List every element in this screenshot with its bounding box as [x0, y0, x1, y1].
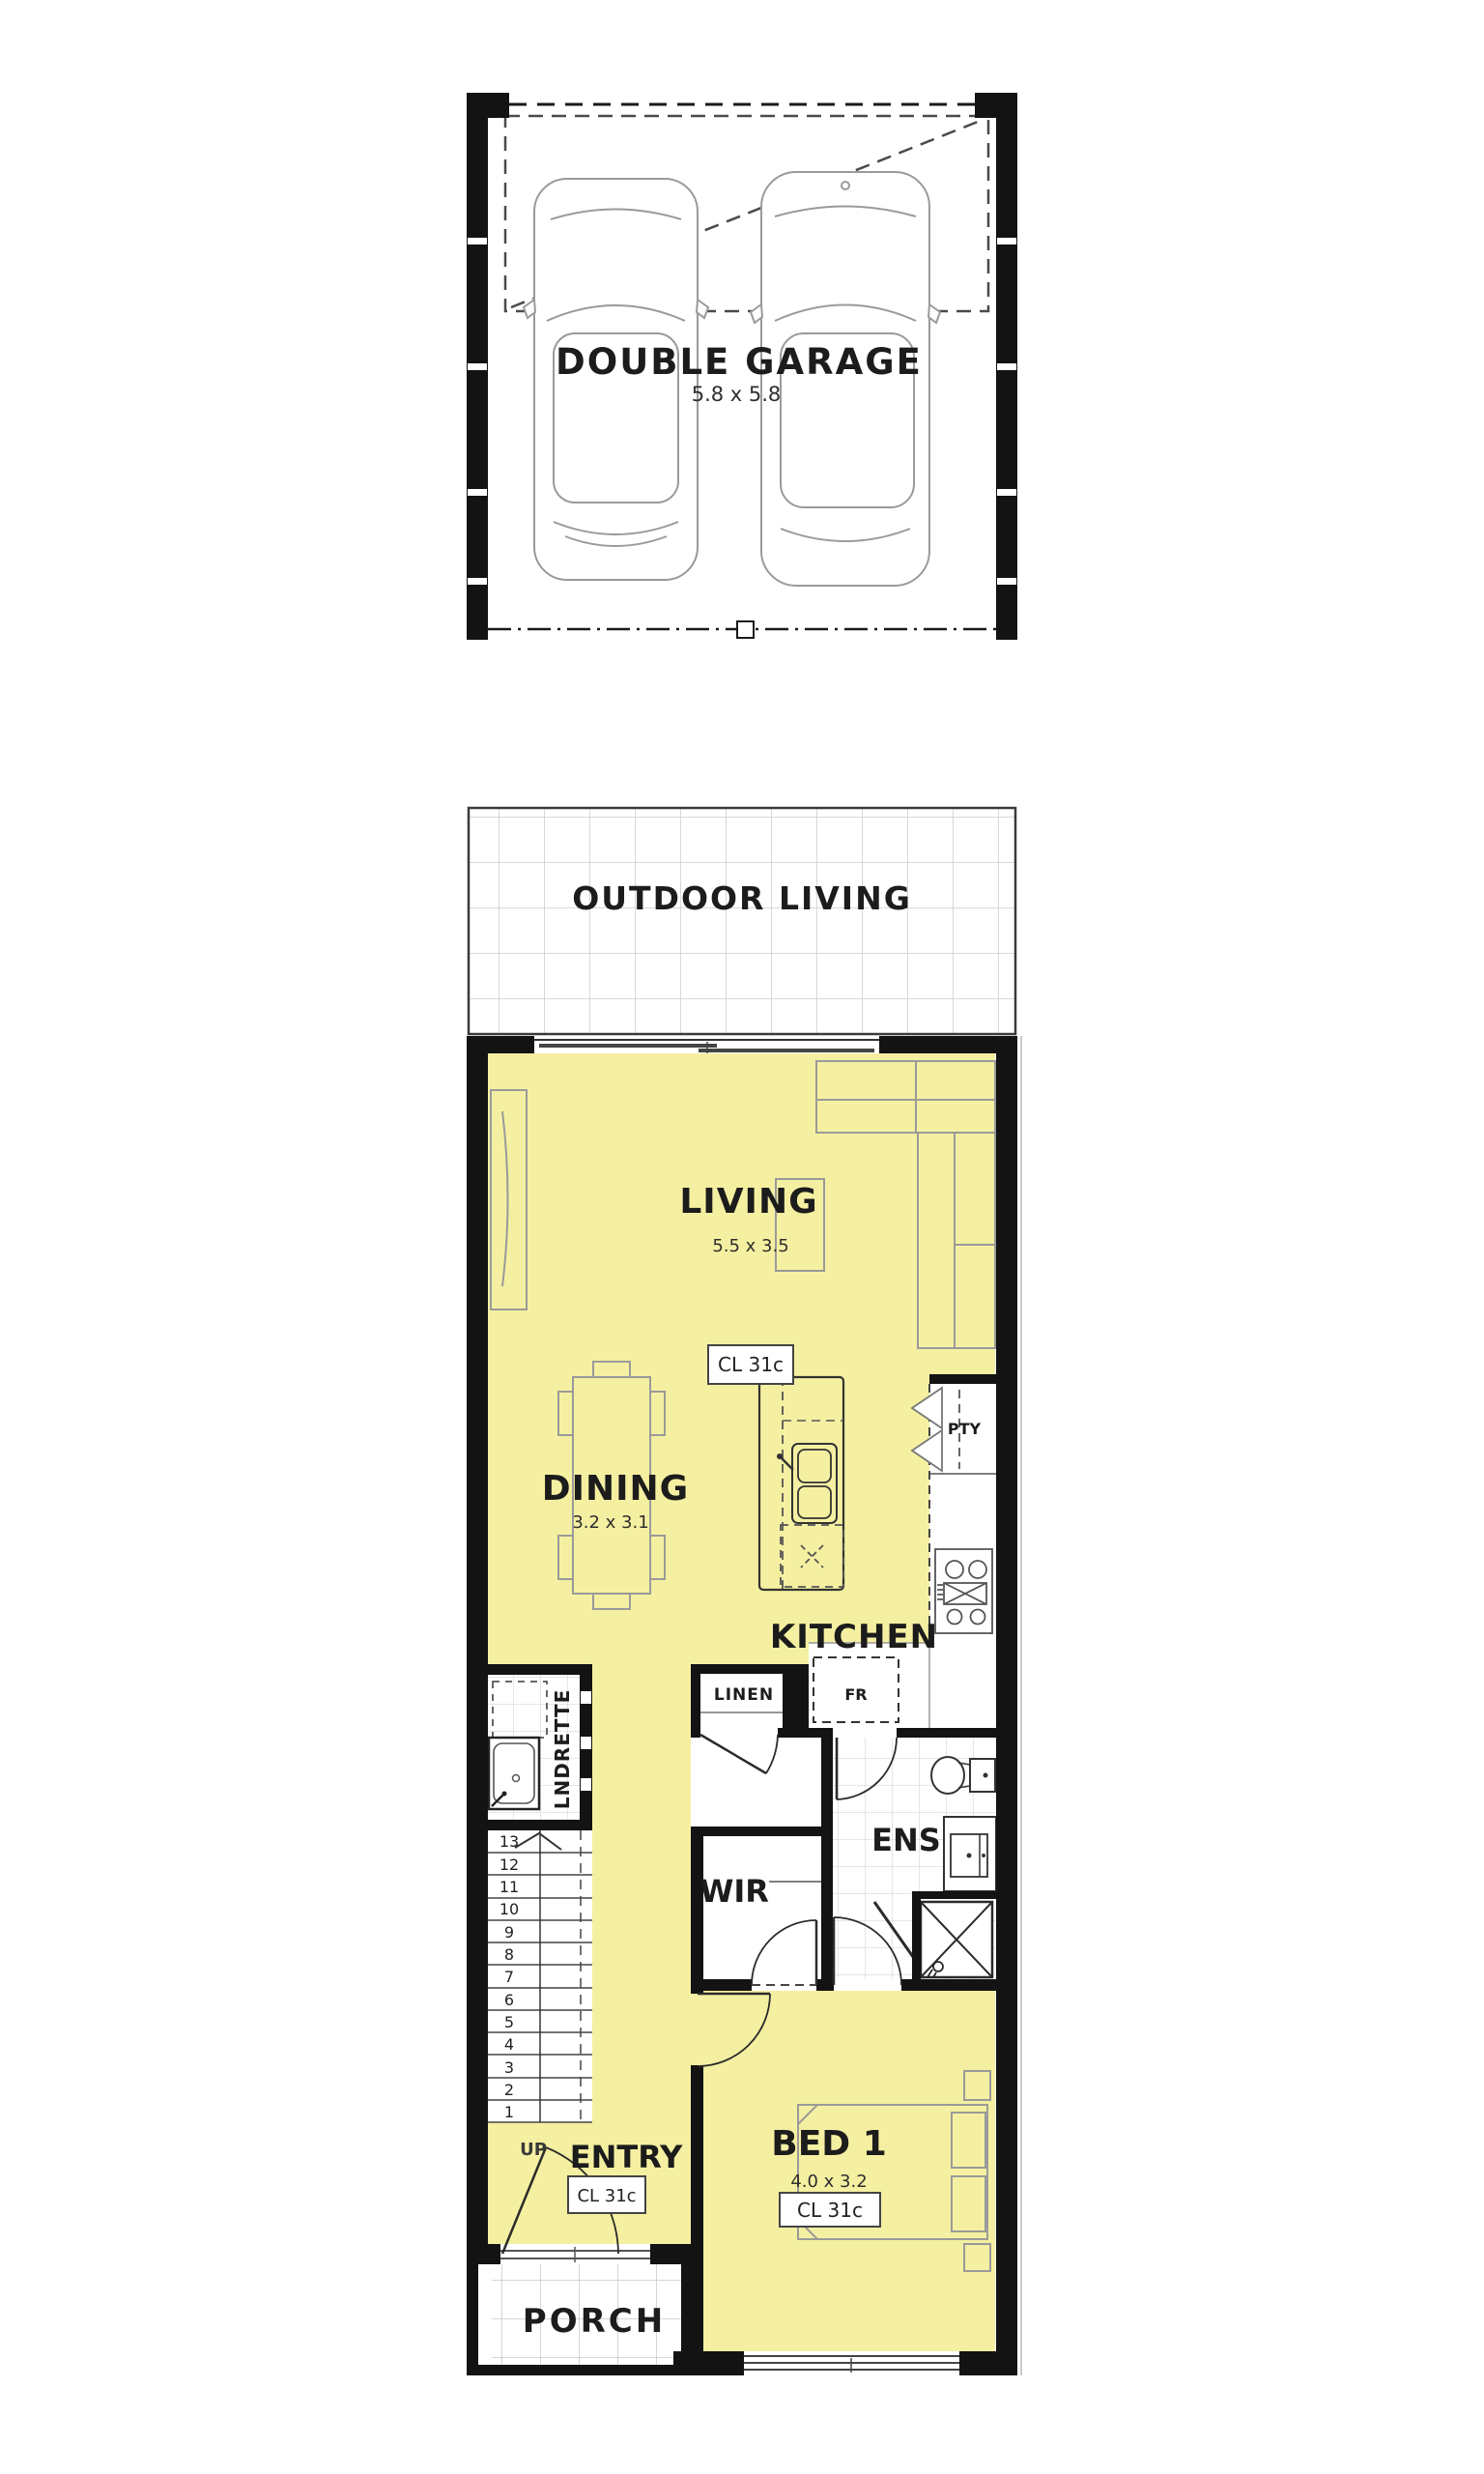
- cooktop-icon: [935, 1549, 992, 1633]
- outdoor-living-label: OUTDOOR LIVING: [572, 879, 912, 917]
- wir-door: [752, 1920, 816, 1985]
- stair-step-number: 4: [504, 2035, 514, 2054]
- svg-text:CL 31c: CL 31c: [718, 1353, 784, 1376]
- bed1-window: [744, 2351, 959, 2375]
- svg-text:CL 31c: CL 31c: [577, 2186, 636, 2206]
- laundry-label: LNDRETTE: [551, 1689, 574, 1810]
- porch-label: PORCH: [523, 2302, 666, 2341]
- stair-step-number: 6: [504, 1991, 514, 2009]
- stairs: 13 12 11 10 9 8 7 6 5 4 3 2 1: [488, 1830, 592, 2122]
- garage-size-label: 5.8 x 5.8: [692, 383, 782, 406]
- island-bench-icon: [759, 1377, 843, 1590]
- stair-step-number: 8: [504, 1945, 514, 1964]
- stair-step-number: 12: [499, 1855, 519, 1874]
- stair-step-number: 3: [504, 2058, 514, 2077]
- floor-plan-page: DOUBLE GARAGE 5.8 x 5.8 OUTDOOR LIVING: [0, 0, 1484, 2474]
- vanity-icon: [944, 1817, 996, 1891]
- stair-step-number: 9: [504, 1923, 514, 1942]
- kitchen-label: KITCHEN: [770, 1618, 938, 1656]
- fridge-label: FR: [844, 1685, 867, 1704]
- pantry-label: PTY: [948, 1420, 982, 1438]
- outdoor-living-area: OUTDOOR LIVING: [469, 808, 1015, 1034]
- stair-step-number: 13: [499, 1832, 519, 1851]
- up-label: UP: [520, 2140, 547, 2160]
- entry-label: ENTRY: [570, 2139, 683, 2175]
- bed1-label: BED 1: [771, 2124, 887, 2164]
- entry-ceiling-badge: CL 31c: [568, 2176, 645, 2213]
- stair-step-number: 1: [504, 2103, 514, 2121]
- linen-door: [700, 1735, 778, 1773]
- sliding-door: [534, 1036, 879, 1053]
- dining-label: DINING: [542, 1469, 689, 1509]
- stair-step-number: 7: [504, 1968, 514, 1986]
- garage-boundary-marker: [737, 621, 754, 638]
- stair-step-number: 2: [504, 2081, 514, 2099]
- bed1-size-label: 4.0 x 3.2: [790, 2172, 867, 2192]
- outdoor-living-paving: [469, 808, 1015, 1034]
- stair-step-number: 11: [499, 1878, 519, 1896]
- garage-label: DOUBLE GARAGE: [556, 341, 923, 383]
- laundry-trough-icon: [489, 1738, 539, 1809]
- svg-text:CL 31c: CL 31c: [797, 2199, 863, 2222]
- garage-plan: DOUBLE GARAGE 5.8 x 5.8: [467, 93, 1017, 640]
- living-label: LIVING: [679, 1182, 817, 1222]
- bed1-ceiling-badge: CL 31c: [780, 2193, 880, 2227]
- linen-label: LINEN: [714, 1685, 774, 1705]
- shower-icon: [921, 1902, 992, 1977]
- stair-step-number: 5: [504, 2013, 514, 2031]
- living-size-label: 5.5 x 3.5: [712, 1236, 788, 1256]
- floor-plan-svg: DOUBLE GARAGE 5.8 x 5.8 OUTDOOR LIVING: [0, 0, 1484, 2474]
- stair-step-number: 10: [499, 1900, 519, 1918]
- wir-label: WIR: [699, 1873, 769, 1910]
- dining-size-label: 3.2 x 3.1: [572, 1512, 648, 1533]
- living-ceiling-badge: CL 31c: [708, 1345, 793, 1384]
- ensuite-label: ENS: [871, 1822, 941, 1858]
